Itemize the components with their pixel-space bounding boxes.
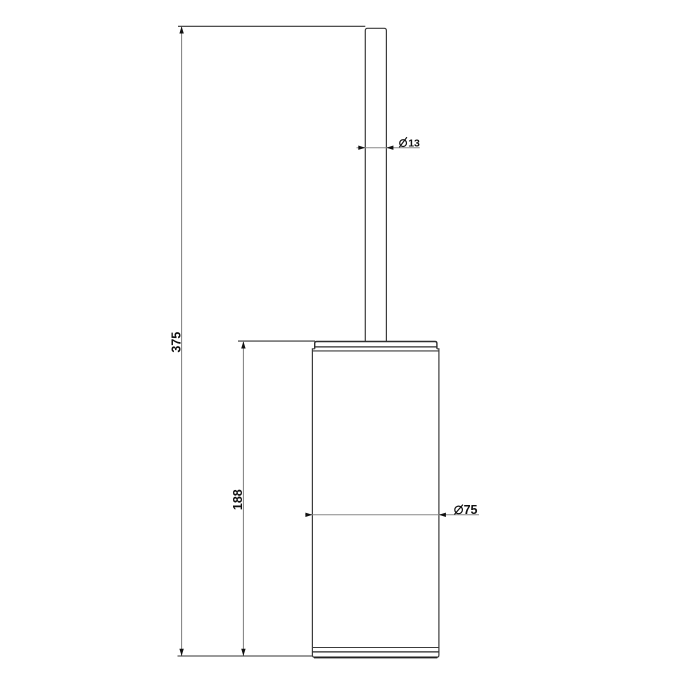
svg-text:375: 375: [169, 332, 183, 353]
svg-text:13: 13: [408, 138, 420, 150]
svg-text:188: 188: [231, 489, 245, 510]
svg-text:75: 75: [464, 503, 478, 517]
